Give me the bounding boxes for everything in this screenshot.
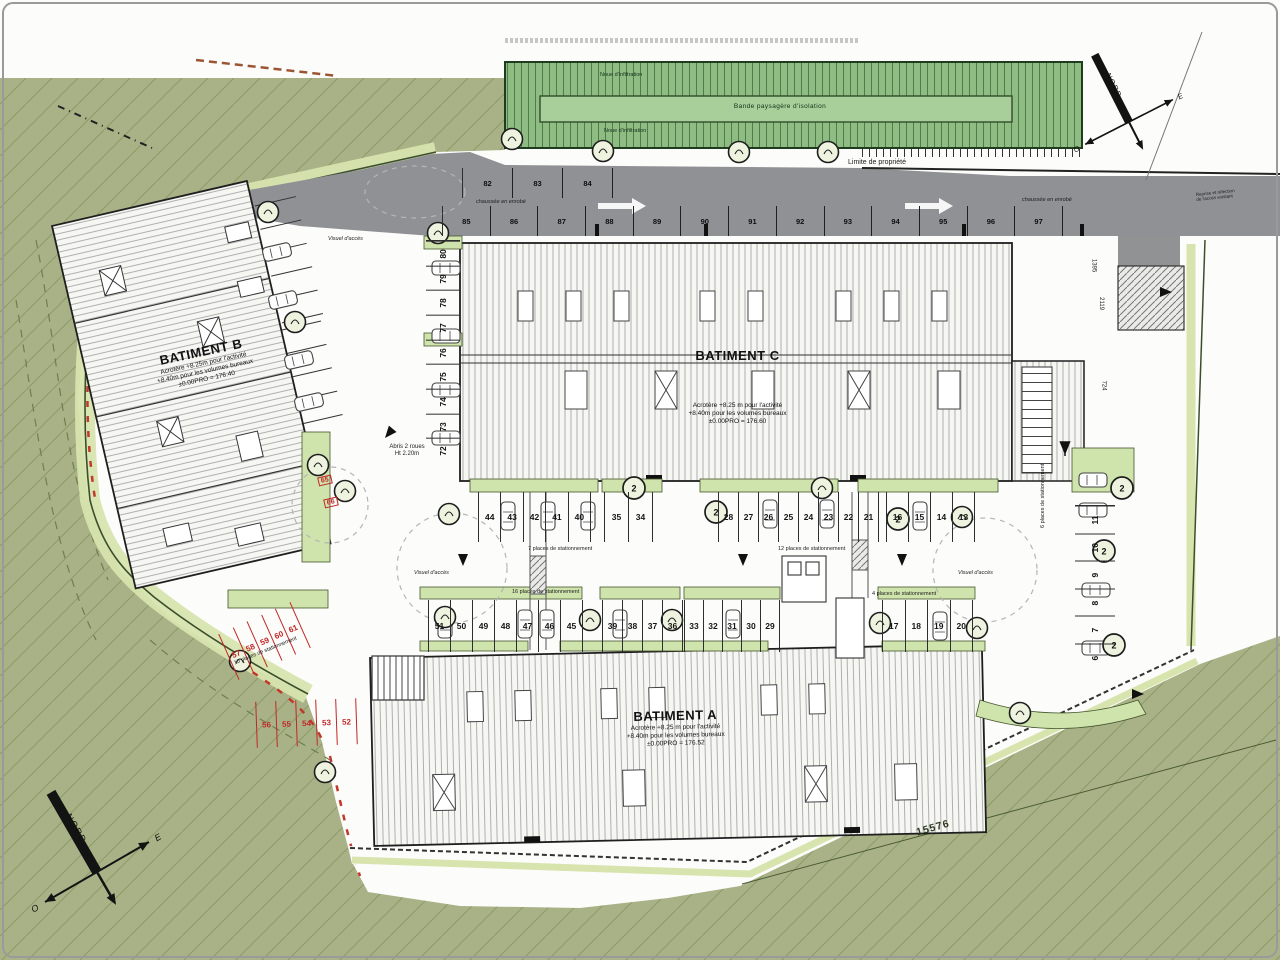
- parking-stall-number: 90: [681, 206, 729, 236]
- visual-access-3: Visuel d'accès: [958, 570, 993, 577]
- count-4-label: 4 places de stationnement: [872, 591, 936, 598]
- parking-stall-number: 45: [561, 600, 583, 652]
- site-plan-canvas: NORD E O: [0, 0, 1280, 960]
- dim-2119: 2119: [1097, 297, 1104, 310]
- parking-stall-number: 84: [563, 168, 613, 198]
- parking-col-east: 11109876: [1075, 505, 1115, 671]
- parking-stall-number: 8: [1075, 589, 1115, 617]
- batiment-c-name: BATIMENT C: [620, 348, 855, 363]
- parking-stall-number: 24: [799, 492, 819, 542]
- parking-stall-number: 46: [539, 600, 561, 652]
- parking-stall-number: 11: [1075, 506, 1115, 534]
- parking-stall-number: 97: [1015, 206, 1063, 236]
- parking-stall-number: 17: [883, 600, 906, 652]
- bike-shelter-line2: Ht 2.20m: [368, 451, 446, 458]
- parking-stall-number: 14: [931, 492, 953, 542]
- parking-stall-number: 55: [276, 700, 298, 747]
- micro-text-line: [505, 38, 860, 43]
- parking-stall-number: 7: [1075, 616, 1115, 644]
- parking-stall-number: 80: [426, 241, 460, 266]
- parking-stall-number: 28: [719, 492, 739, 542]
- parking-stall-number: 91: [729, 206, 777, 236]
- bike-shelter-label: Abris 2 roues Ht 2.20m: [368, 444, 446, 458]
- parking-stall-number: 19: [928, 600, 951, 652]
- parking-stall-number: 87: [538, 206, 586, 236]
- batiment-c-label: BATIMENT C Acrotère +8.25 m pour l'activ…: [620, 348, 855, 425]
- parking-stall-number: 75: [426, 364, 460, 389]
- parking-stall-number: 53: [316, 699, 338, 746]
- parking-stall-number: 77: [426, 315, 460, 340]
- parking-stall-number: 92: [777, 206, 825, 236]
- parking-stall-number: 78: [426, 290, 460, 315]
- batiment-c-niveau: ±0.00PRO = 176.60: [620, 418, 855, 425]
- landscape-band-label: Bande paysagère d'isolation: [690, 103, 870, 111]
- dim-724: 724: [1099, 381, 1106, 391]
- dim-1395: 1395: [1089, 259, 1096, 272]
- parking-stall-number: 41: [546, 492, 568, 542]
- parking-col-west: 807978777675747372: [426, 240, 460, 463]
- parking-stall-number: 36: [663, 600, 683, 652]
- parking-stall-number: 86: [491, 206, 539, 236]
- noue-bottom-label: Noue d'infiltration: [604, 128, 646, 135]
- parking-stall-number: 32: [704, 600, 723, 652]
- access-stub: [1118, 236, 1180, 268]
- parking-row-upper-1: 4443424140: [478, 492, 591, 542]
- parking-stall-number: 15: [909, 492, 931, 542]
- bike-shelter-line1: Abris 2 roues: [368, 444, 446, 451]
- parking-stall-number: 10: [1075, 534, 1115, 562]
- parking-stall-number: 52: [336, 698, 358, 745]
- count-12-label: 12 places de stationnement: [778, 546, 845, 553]
- parking-stall-number: 50: [451, 600, 473, 652]
- parking-stall-number: 74: [426, 389, 460, 414]
- road-stalls-top: 828384: [462, 168, 613, 198]
- parking-stall-number: 40: [569, 492, 591, 542]
- parking-stall-number: 22: [839, 492, 859, 542]
- parking-stall-number: 76: [426, 340, 460, 365]
- parking-row-upper-2: 3534: [604, 492, 653, 542]
- parking-row-lower-4: 17181920: [882, 600, 973, 652]
- parking-stall-number: 9: [1075, 561, 1115, 589]
- batiment-a-label: BATIMENT A Acrotère +8.25 m pour l'activ…: [558, 705, 794, 749]
- parking-stall-number: 30: [742, 600, 761, 652]
- parking-stall-number: 43: [501, 492, 523, 542]
- boundary-diagonal-ne: [1146, 32, 1202, 180]
- parking-stall-number: 51: [429, 600, 451, 652]
- parking-stall-number: 42: [524, 492, 546, 542]
- parking-row-lower-1: 51504948474645: [428, 600, 583, 652]
- parking-stall-number: 93: [825, 206, 873, 236]
- road-stalls-bottom: 85868788899091929394959697: [442, 206, 1063, 236]
- visual-access-2: Visuel d'accès: [414, 570, 449, 577]
- parking-stall-number: 34: [629, 492, 653, 542]
- parking-stall-number: 33: [685, 600, 704, 652]
- parking-row-upper-4: 16151413: [886, 492, 975, 542]
- parking-stall-number: 23: [819, 492, 839, 542]
- parking-stall-number: 21: [859, 492, 879, 542]
- noue-top-label: Noue d'infiltration: [600, 72, 642, 79]
- parking-stall-number: 16: [887, 492, 909, 542]
- parking-stall-number: 29: [761, 600, 780, 652]
- parking-stall-number: 38: [623, 600, 643, 652]
- parking-stall-number: 83: [513, 168, 563, 198]
- parking-stall-number: 56: [256, 701, 278, 748]
- tree-ref: 2: [1119, 484, 1124, 494]
- parking-stall-number: 79: [426, 266, 460, 291]
- batiment-c-acrotere: Acrotère +8.25 m pour l'activité: [620, 402, 855, 409]
- parking-stall-number: 18: [906, 600, 929, 652]
- parking-stall-number: 96: [968, 206, 1016, 236]
- road-surface-label-right: chaussée en enrobé: [1022, 197, 1072, 204]
- parking-row-red-lower: 5655545352: [255, 698, 358, 747]
- parking-stall-number: 44: [479, 492, 501, 542]
- visual-access-1: Visuel d'accès: [328, 236, 363, 243]
- batiment-c-volumes: +8.40m pour les volumes bureaux: [620, 410, 855, 417]
- parking-stall-number: 13: [953, 492, 975, 542]
- road-surface-label-left: chaussée en enrobé: [476, 199, 526, 206]
- parking-stall-number: 47: [517, 600, 539, 652]
- count-6-label: 6 places de stationnement: [1040, 464, 1047, 528]
- parking-stall-number: 27: [739, 492, 759, 542]
- parking-stall-number: 54: [296, 700, 318, 747]
- parking-stall-number: 94: [872, 206, 920, 236]
- parking-stall-number: 95: [920, 206, 968, 236]
- parking-stall-number: 37: [643, 600, 663, 652]
- parking-stall-number: 89: [634, 206, 682, 236]
- parking-stall-number: 6: [1075, 644, 1115, 672]
- count-7-label: 7 places de stationnement: [528, 546, 592, 553]
- parking-stall-number: 48: [495, 600, 517, 652]
- parking-row-lower-2: 39383736: [602, 600, 683, 652]
- parking-stall-number: 88: [586, 206, 634, 236]
- hatched-access-area: [1118, 266, 1184, 330]
- old-boundary-line: [196, 60, 338, 76]
- parking-stall-number: 85: [443, 206, 491, 236]
- property-limit-label: Limite de propriété: [848, 159, 906, 167]
- parking-stall-number: 73: [426, 414, 460, 439]
- stairs-batiment-a: [372, 656, 424, 700]
- parking-stall-number: 26: [759, 492, 779, 542]
- count-16-label: 16 places de stationnement: [512, 589, 579, 596]
- parking-stall-number: 31: [723, 600, 742, 652]
- site-plan-drawing: NORD E O: [0, 0, 1280, 960]
- parking-stall-number: 35: [605, 492, 629, 542]
- parking-row-lower-3: 3332313029: [684, 600, 780, 652]
- parking-stall-number: 39: [603, 600, 623, 652]
- parking-stall-number: 49: [473, 600, 495, 652]
- parking-row-upper-3: 2827262524232221: [718, 492, 879, 542]
- parking-stall-number: 20: [951, 600, 974, 652]
- parking-stall-number: 25: [779, 492, 799, 542]
- parking-stall-number: 82: [463, 168, 513, 198]
